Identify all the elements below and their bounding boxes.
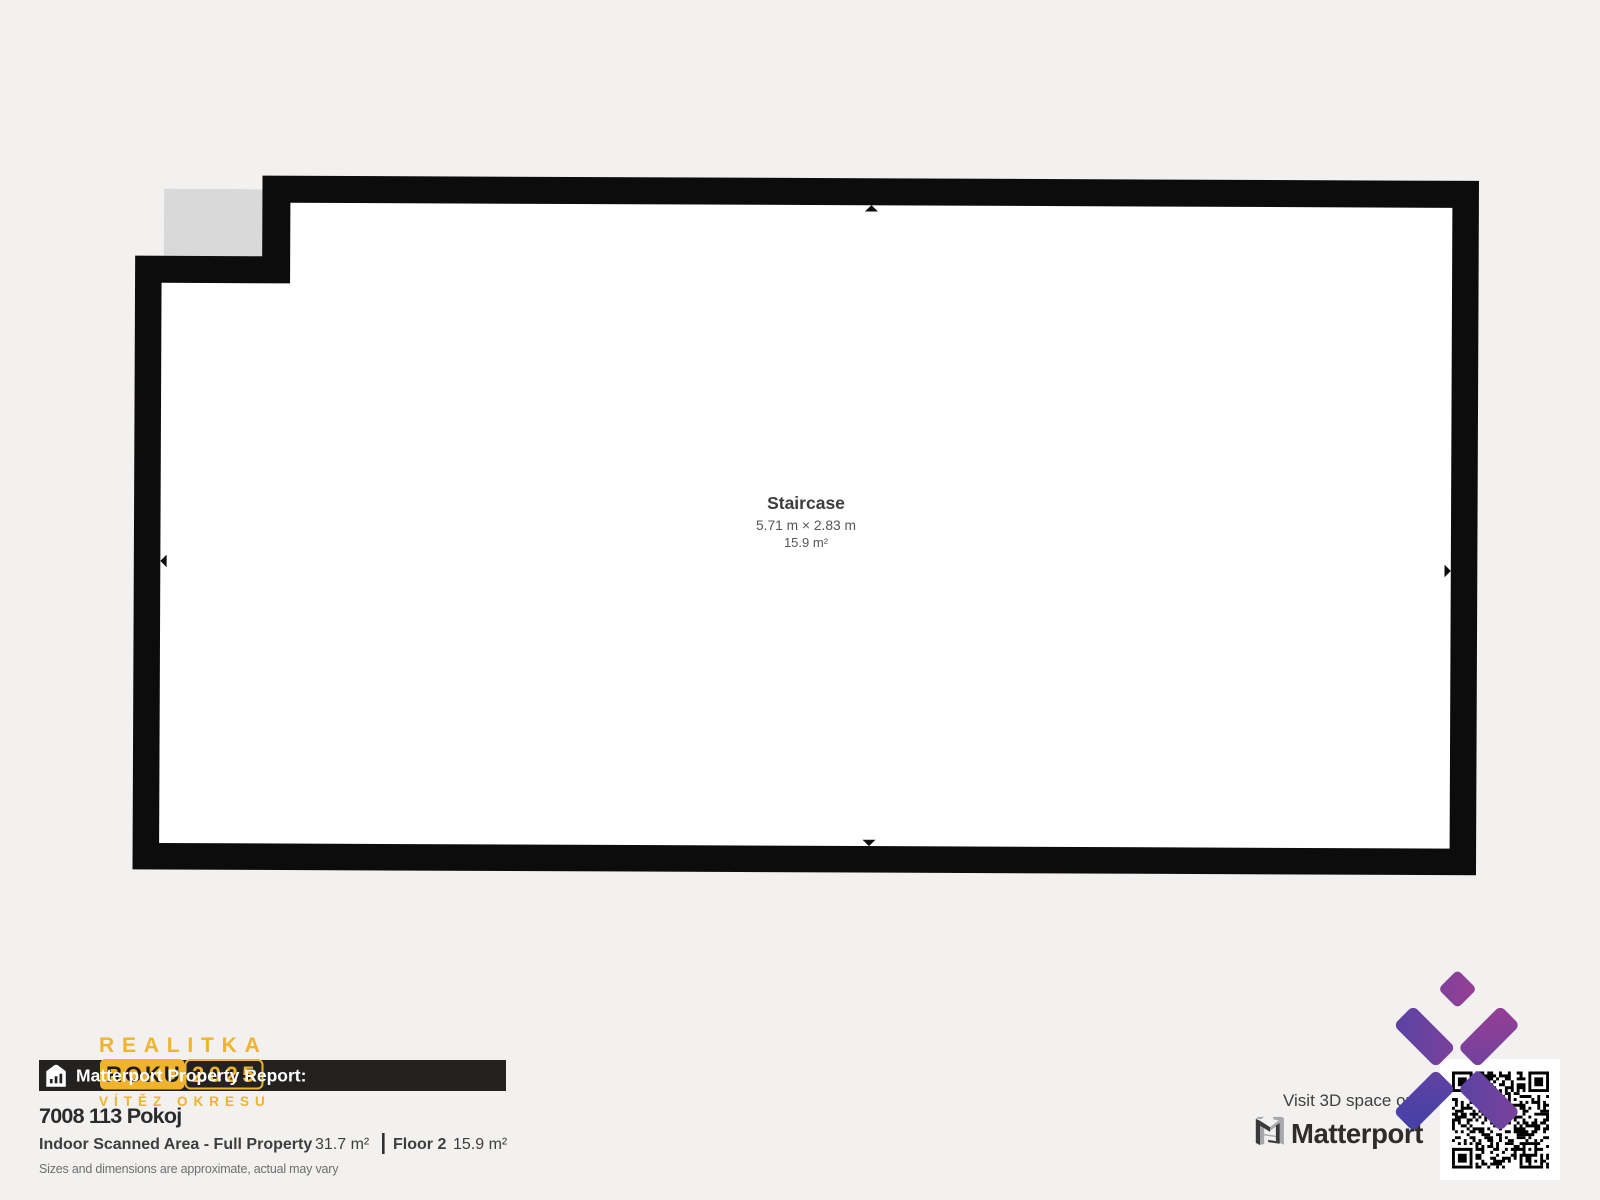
svg-text:5.71 m × 2.83 m: 5.71 m × 2.83 m	[756, 518, 856, 533]
svg-text:7008 113 Pokoj: 7008 113 Pokoj	[39, 1104, 182, 1128]
svg-text:15.9 m²: 15.9 m²	[453, 1136, 508, 1153]
svg-text:Matterport Property Report:: Matterport Property Report:	[76, 1066, 306, 1086]
svg-text:Sizes and dimensions are appro: Sizes and dimensions are approximate, ac…	[39, 1162, 339, 1176]
svg-text:Staircase: Staircase	[767, 493, 845, 513]
svg-text:15.9 m²: 15.9 m²	[784, 535, 829, 550]
svg-text:REALITKA: REALITKA	[99, 1034, 268, 1057]
svg-text:31.7 m²: 31.7 m²	[315, 1136, 370, 1153]
svg-text:Indoor Scanned Area - Full Pro: Indoor Scanned Area - Full Property	[39, 1136, 312, 1153]
svg-text:Matterport: Matterport	[1291, 1118, 1423, 1149]
svg-text:Floor 2: Floor 2	[393, 1136, 446, 1153]
